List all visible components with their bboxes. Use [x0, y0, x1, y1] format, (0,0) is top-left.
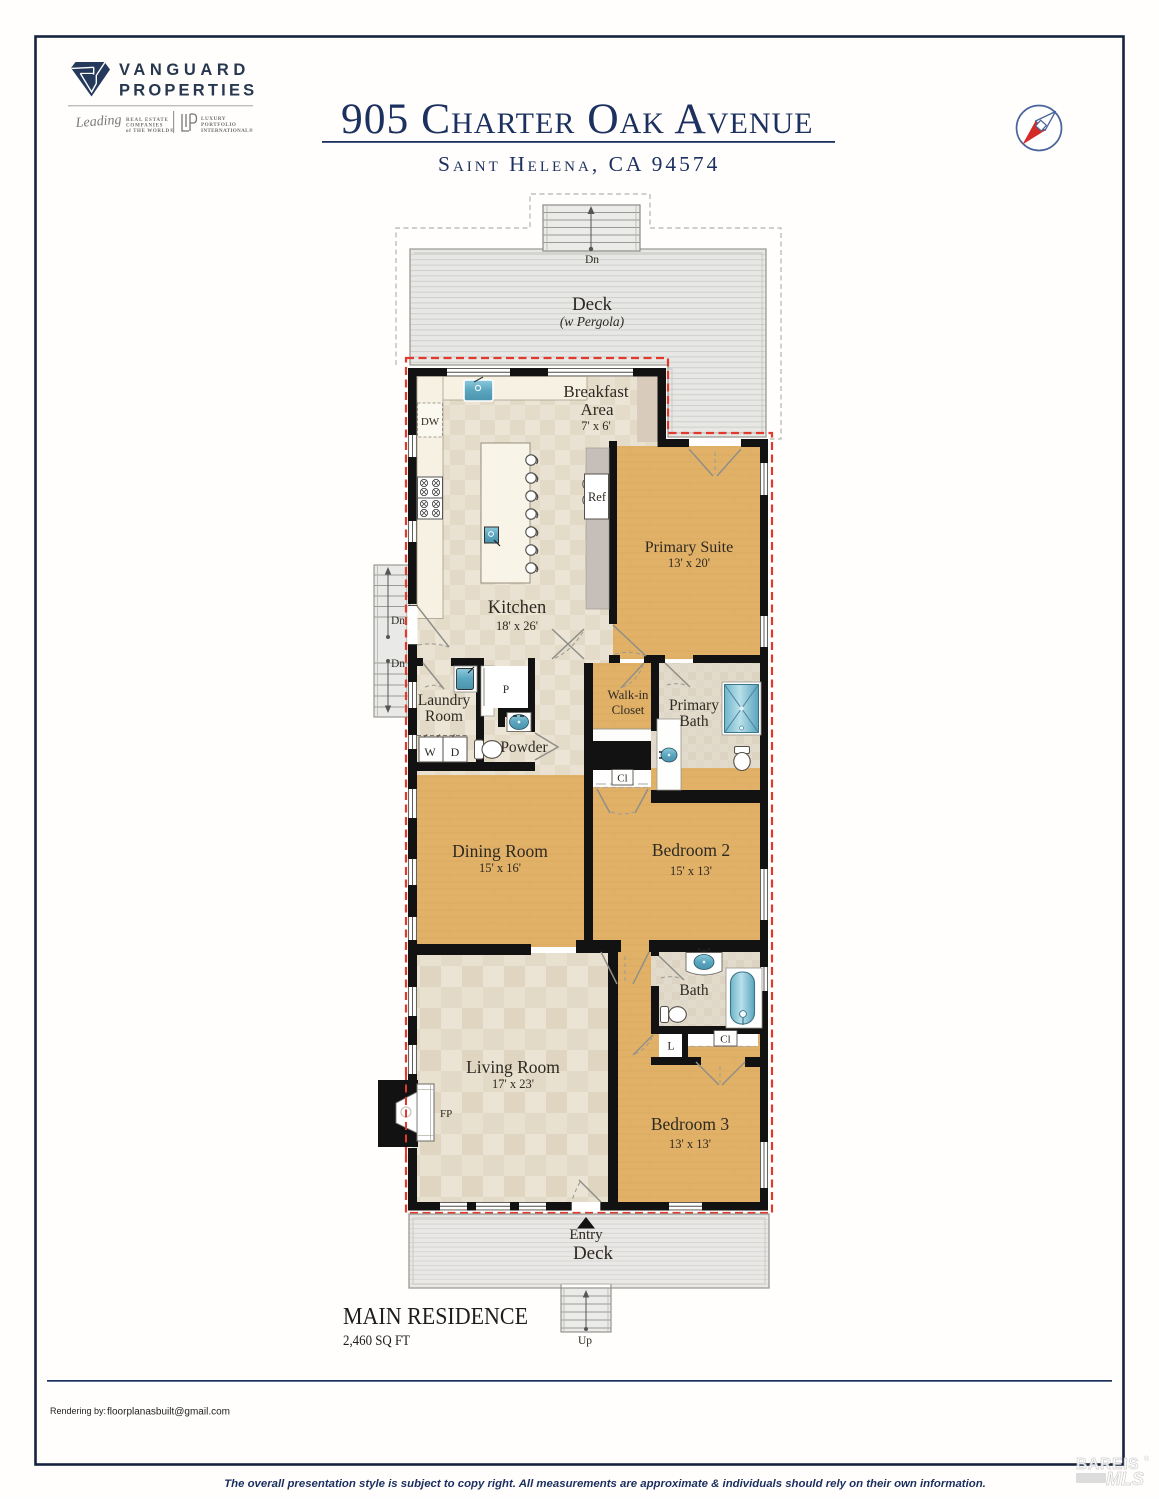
svg-text:(w Pergola): (w Pergola): [560, 314, 625, 329]
svg-text:Cl: Cl: [720, 1034, 730, 1046]
svg-text:Powder: Powder: [500, 739, 548, 756]
svg-text:2,460 SQ FT: 2,460 SQ FT: [343, 1333, 410, 1349]
svg-text:MAIN RESIDENCE: MAIN RESIDENCE: [343, 1304, 528, 1330]
svg-text:Up: Up: [578, 1335, 592, 1347]
svg-text:Saint Helena, CA 94574: Saint Helena, CA 94574: [438, 152, 720, 176]
svg-text:Deck: Deck: [573, 1243, 614, 1264]
svg-text:W: W: [424, 745, 436, 759]
svg-text:Dn: Dn: [585, 254, 599, 266]
svg-text:15' x 16': 15' x 16': [479, 861, 521, 875]
svg-text:Walk-in: Walk-in: [608, 688, 650, 702]
svg-text:Dn: Dn: [391, 615, 405, 627]
svg-text:13' x 20': 13' x 20': [668, 556, 710, 570]
svg-text:Dining Room: Dining Room: [452, 841, 548, 861]
svg-text:MLS: MLS: [1106, 1469, 1144, 1489]
svg-text:Bedroom 2: Bedroom 2: [652, 840, 730, 860]
svg-text:Living Room: Living Room: [466, 1057, 560, 1077]
svg-text:FP: FP: [440, 1108, 452, 1120]
svg-text:INTERNATIONAL®: INTERNATIONAL®: [201, 127, 253, 134]
svg-text:Primary Suite: Primary Suite: [645, 539, 733, 556]
svg-text:15' x 13': 15' x 13': [670, 864, 712, 878]
svg-text:13' x 13': 13' x 13': [669, 1137, 711, 1151]
svg-text:Deck: Deck: [572, 294, 613, 315]
svg-text:Ref: Ref: [588, 490, 607, 504]
svg-text:Bath: Bath: [679, 982, 709, 999]
svg-text:®: ®: [1144, 1455, 1150, 1463]
svg-text:Area: Area: [580, 400, 613, 419]
svg-text:DW: DW: [421, 416, 440, 428]
svg-text:Entry: Entry: [569, 1227, 603, 1243]
svg-text:P: P: [503, 684, 509, 696]
svg-text:Primary: Primary: [669, 697, 719, 714]
svg-text:7' x 6': 7' x 6': [581, 419, 611, 433]
svg-text:L: L: [667, 1039, 674, 1053]
svg-text:Dn: Dn: [391, 658, 405, 670]
svg-text:Rendering by:: Rendering by:: [50, 1406, 106, 1416]
svg-text:VANGUARD: VANGUARD: [119, 61, 250, 79]
svg-text:905 Charter Oak Avenue: 905 Charter Oak Avenue: [341, 95, 814, 143]
svg-text:Laundry: Laundry: [418, 692, 471, 709]
svg-text:18' x 26': 18' x 26': [496, 619, 538, 633]
svg-text:Breakfast: Breakfast: [563, 382, 628, 401]
svg-text:Bedroom 3: Bedroom 3: [651, 1114, 730, 1134]
svg-text:Room: Room: [425, 708, 463, 725]
svg-text:REAL ESTATE: REAL ESTATE: [126, 118, 169, 123]
svg-text:17' x 23': 17' x 23': [492, 1077, 534, 1091]
svg-text:COMPANIES: COMPANIES: [126, 124, 163, 129]
svg-text:floorplanasbuilt@gmail.com: floorplanasbuilt@gmail.com: [107, 1407, 230, 1418]
svg-text:D: D: [451, 745, 460, 759]
svg-text:The overall presentation style: The overall presentation style is subjec…: [224, 1478, 986, 1490]
svg-text:Closet: Closet: [612, 703, 645, 717]
svg-text:of THE WORLD®: of THE WORLD®: [126, 128, 174, 134]
svg-text:Cl: Cl: [617, 773, 627, 785]
svg-text:Kitchen: Kitchen: [488, 598, 547, 618]
svg-text:PROPERTIES: PROPERTIES: [119, 82, 257, 100]
svg-text:Bath: Bath: [679, 713, 709, 730]
